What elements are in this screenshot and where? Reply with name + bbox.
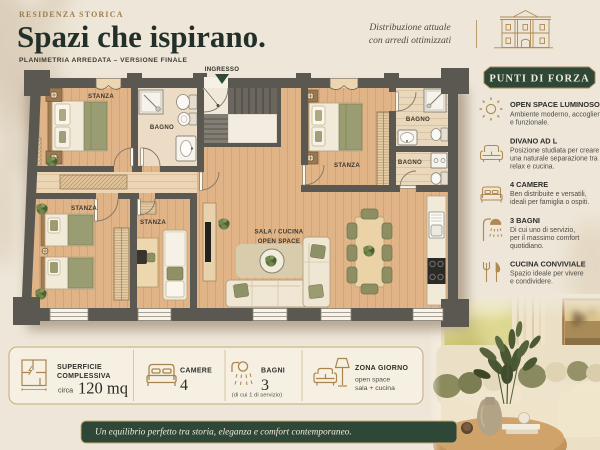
- svg-text:circa: circa: [58, 386, 73, 395]
- svg-text:CAMERE: CAMERE: [180, 368, 212, 375]
- svg-text:quotidiano.: quotidiano.: [510, 243, 544, 250]
- svg-text:una naturale separazione tra z: una naturale separazione tra zona: [510, 156, 600, 163]
- svg-text:PUNTI DI FORZA: PUNTI DI FORZA: [489, 74, 589, 85]
- svg-text:con arredi ottimizzati: con arredi ottimizzati: [369, 35, 452, 46]
- svg-text:4 CAMERE: 4 CAMERE: [510, 180, 548, 189]
- svg-text:STANZA: STANZA: [140, 219, 166, 226]
- svg-text:e funzionale.: e funzionale.: [510, 120, 549, 127]
- svg-text:Posizione studiata per creare: Posizione studiata per creare: [510, 148, 599, 155]
- svg-text:3: 3: [261, 377, 269, 394]
- svg-text:BAGNI: BAGNI: [261, 368, 285, 375]
- svg-text:PLANIMETRIA ARREDATA – VERSION: PLANIMETRIA ARREDATA – VERSIONE FINALE: [19, 57, 188, 64]
- svg-text:OPEN SPACE LUMINOSO: OPEN SPACE LUMINOSO: [510, 100, 600, 109]
- svg-text:CUCINA CONVIVIALE: CUCINA CONVIVIALE: [510, 260, 586, 269]
- svg-text:Ambiente moderno, accogliente: Ambiente moderno, accogliente: [510, 112, 600, 119]
- svg-text:BAGNO: BAGNO: [406, 116, 430, 123]
- svg-text:SALA / CUCINA: SALA / CUCINA: [254, 229, 303, 236]
- svg-text:SUPERFICIE: SUPERFICIE: [57, 364, 102, 371]
- svg-text:STANZA: STANZA: [88, 93, 114, 100]
- svg-text:STANZA: STANZA: [71, 205, 97, 212]
- svg-text:relax e cucina.: relax e cucina.: [510, 164, 555, 171]
- svg-text:e condividere.: e condividere.: [510, 279, 553, 286]
- svg-text:OPEN SPACE: OPEN SPACE: [258, 238, 301, 245]
- svg-text:STANZA: STANZA: [334, 162, 360, 169]
- svg-text:BAGNO: BAGNO: [150, 124, 174, 131]
- svg-text:per il massimo comfort: per il massimo comfort: [510, 235, 579, 242]
- svg-text:Spazi che ispirano.: Spazi che ispirano.: [17, 19, 266, 54]
- svg-text:ZONA GIORNO: ZONA GIORNO: [355, 365, 408, 372]
- svg-text:Di cui uno di servizio,: Di cui uno di servizio,: [510, 227, 575, 234]
- svg-text:3 BAGNI: 3 BAGNI: [510, 216, 540, 225]
- svg-text:sala + cucina: sala + cucina: [355, 385, 395, 392]
- svg-text:Distribuzione attuale: Distribuzione attuale: [368, 22, 451, 33]
- svg-text:open space: open space: [355, 377, 390, 384]
- svg-text:Ben distribuite e versatili,: Ben distribuite e versatili,: [510, 191, 587, 198]
- svg-text:ideali per famiglia o ospiti.: ideali per famiglia o ospiti.: [510, 199, 589, 206]
- svg-text:(di cui 1 di servizio): (di cui 1 di servizio): [232, 393, 282, 399]
- svg-text:INGRESSO: INGRESSO: [205, 66, 240, 73]
- svg-text:RESIDENZA STORICA: RESIDENZA STORICA: [19, 10, 124, 19]
- svg-text:Spazio ideale per vivere: Spazio ideale per vivere: [510, 271, 584, 278]
- svg-text:BAGNO: BAGNO: [398, 159, 422, 166]
- svg-text:Un equilibrio perfetto tra sto: Un equilibrio perfetto tra storia, elega…: [95, 427, 352, 438]
- svg-text:4: 4: [180, 377, 188, 394]
- svg-text:DIVANO AD L: DIVANO AD L: [510, 137, 558, 146]
- svg-text:120 mq: 120 mq: [78, 379, 128, 398]
